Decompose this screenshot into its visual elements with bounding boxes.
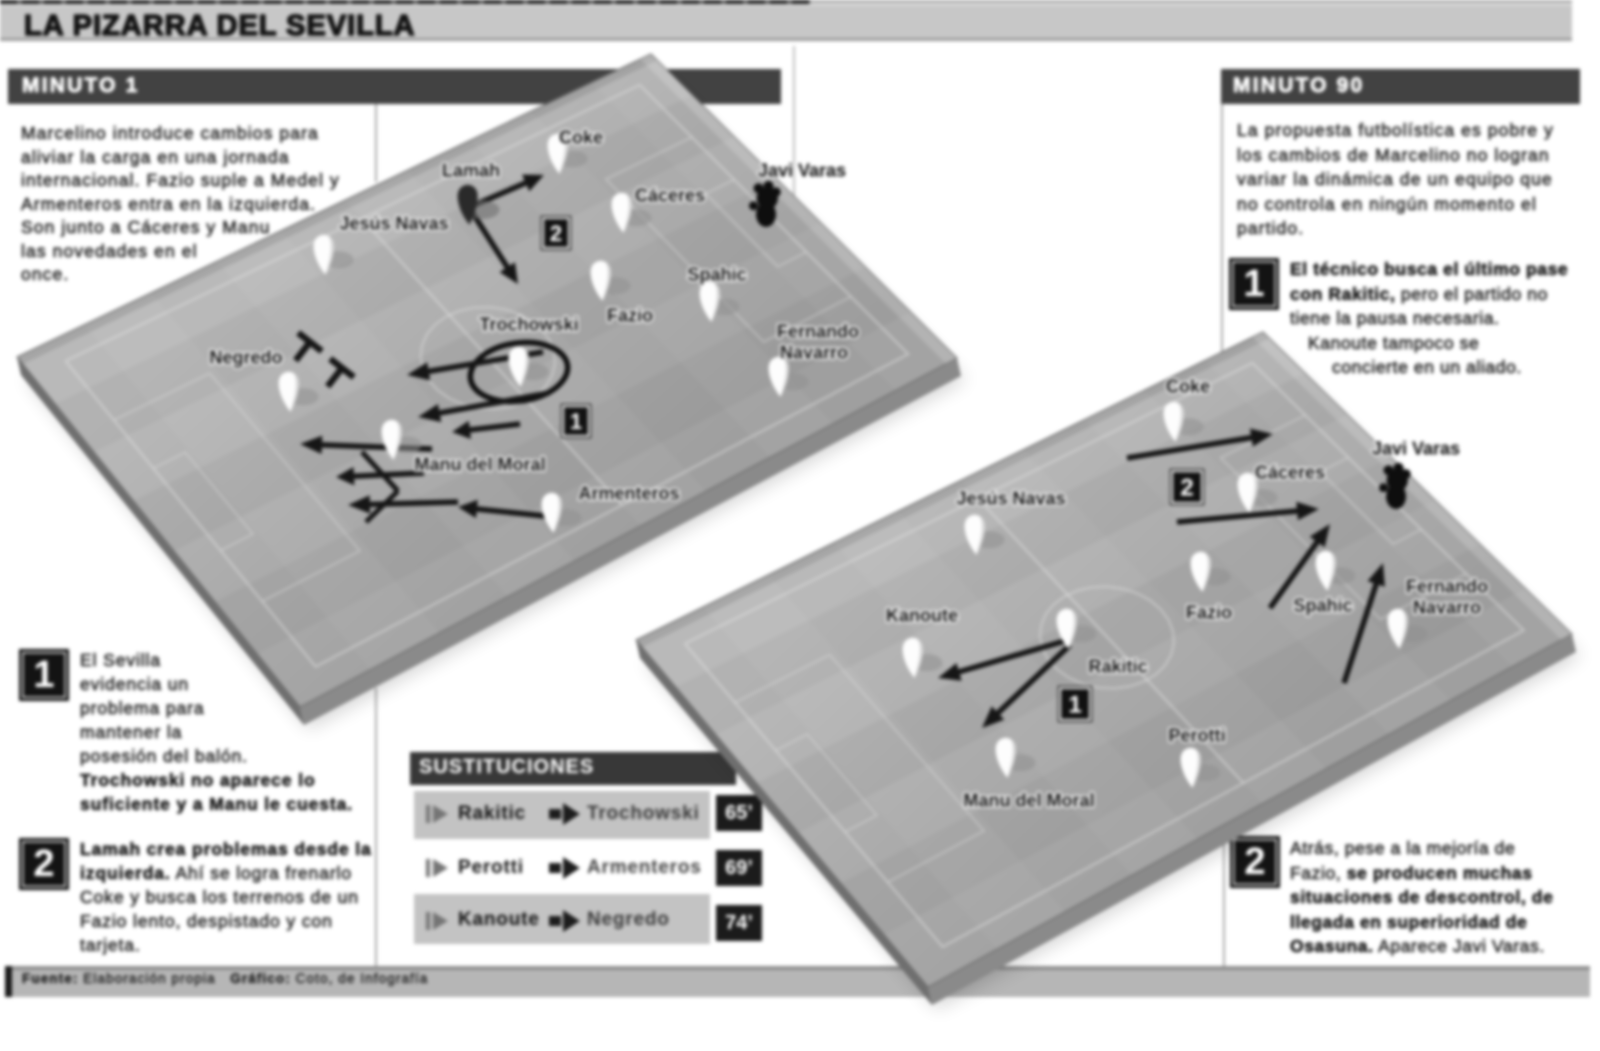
svg-text:Jesús Navas: Jesús Navas xyxy=(956,488,1065,508)
svg-text:Cáceres: Cáceres xyxy=(635,185,705,205)
svg-text:Manu del Moral: Manu del Moral xyxy=(963,790,1094,810)
svg-text:Cáceres: Cáceres xyxy=(1255,462,1325,482)
svg-text:Fernando: Fernando xyxy=(777,321,859,341)
svg-text:Coke: Coke xyxy=(559,127,603,147)
svg-text:2: 2 xyxy=(1180,475,1193,502)
svg-text:Manu del Moral: Manu del Moral xyxy=(414,454,545,474)
svg-text:Fazio: Fazio xyxy=(1186,602,1232,622)
svg-text:Fazio: Fazio xyxy=(607,305,653,325)
svg-text:Javi Varas: Javi Varas xyxy=(758,160,846,180)
svg-text:Trochowski: Trochowski xyxy=(479,314,578,334)
svg-text:Navarro: Navarro xyxy=(1413,597,1481,617)
svg-text:Coke: Coke xyxy=(1166,376,1210,396)
svg-text:Spahic: Spahic xyxy=(687,264,746,284)
svg-text:2: 2 xyxy=(550,221,562,246)
svg-text:1: 1 xyxy=(1068,692,1081,719)
svg-text:Rakitic: Rakitic xyxy=(1088,656,1147,676)
svg-text:Fernando: Fernando xyxy=(1406,576,1488,596)
svg-text:1: 1 xyxy=(570,409,582,434)
svg-text:Spahic: Spahic xyxy=(1293,595,1352,615)
svg-text:Kanoute: Kanoute xyxy=(886,605,958,625)
svg-text:Armenteros: Armenteros xyxy=(578,483,679,503)
svg-text:Jesús Navas: Jesús Navas xyxy=(339,213,448,233)
svg-text:Lamah: Lamah xyxy=(442,160,500,180)
svg-text:Navarro: Navarro xyxy=(780,342,848,362)
svg-text:Perotti: Perotti xyxy=(1168,725,1225,745)
svg-text:Negredo: Negredo xyxy=(209,347,282,367)
svg-text:Javi Varas: Javi Varas xyxy=(1372,438,1460,458)
